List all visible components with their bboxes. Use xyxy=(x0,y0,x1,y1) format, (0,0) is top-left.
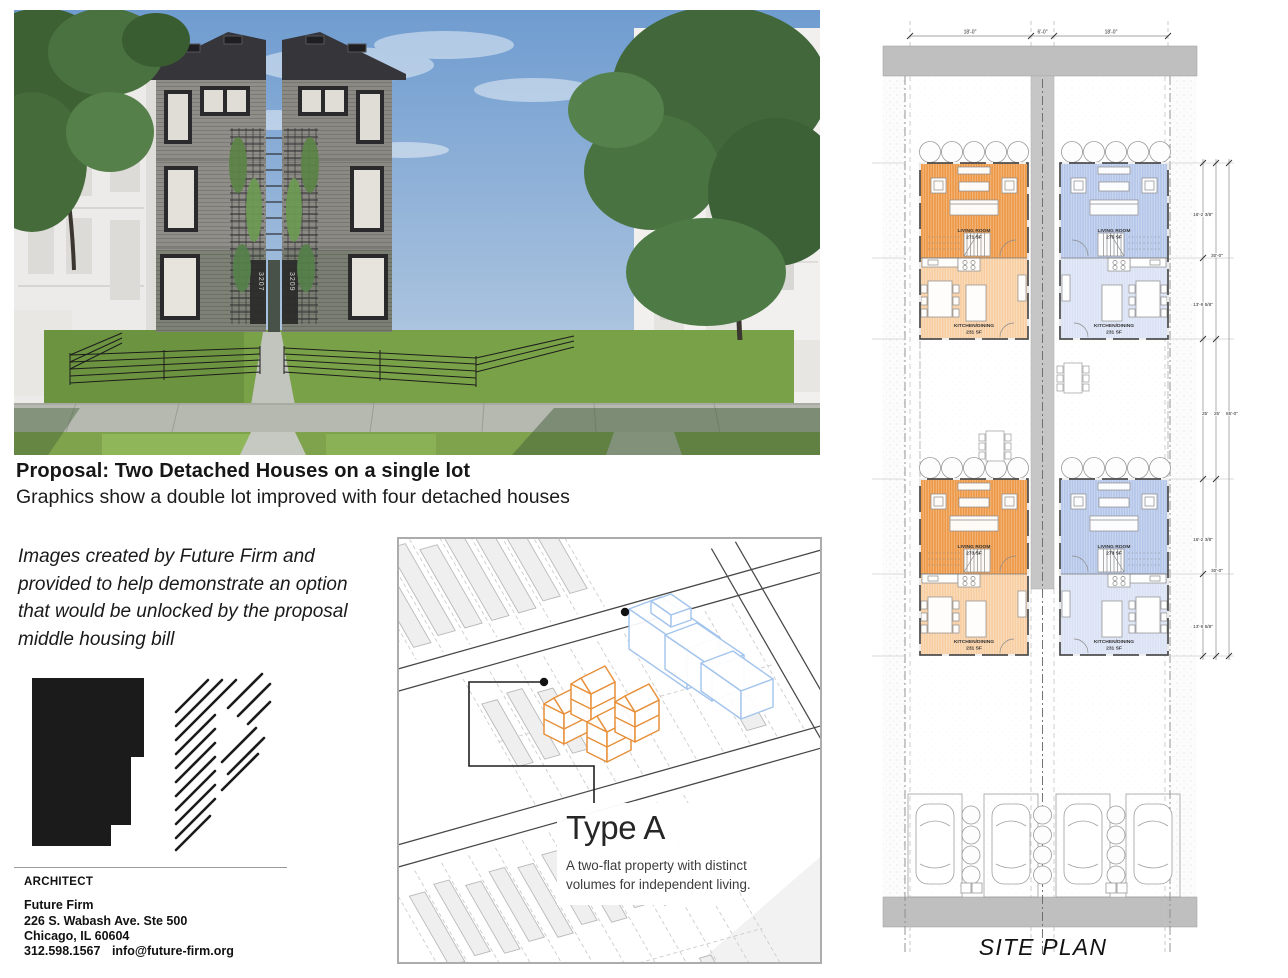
dim-mid-1: 25' xyxy=(1202,411,1208,416)
architect-email: info@future-firm.org xyxy=(112,944,234,958)
svg-text:273 SF: 273 SF xyxy=(1106,551,1122,557)
render-image: 3207 3209 xyxy=(14,10,820,455)
proposal-title: Proposal: Two Detached Houses on a singl… xyxy=(16,460,470,483)
dim-mid-3: 85'-0" xyxy=(1226,411,1238,416)
svg-text:LIVING ROOM: LIVING ROOM xyxy=(958,228,991,234)
svg-text:271 SF: 271 SF xyxy=(966,235,982,241)
street-bottom xyxy=(883,897,1197,927)
callout-dot-orange xyxy=(540,678,548,686)
svg-text:273 SF: 273 SF xyxy=(966,551,982,557)
svg-text:LIVING ROOM: LIVING ROOM xyxy=(1098,544,1131,550)
svg-text:231 SF: 231 SF xyxy=(1106,646,1122,652)
type-a-description-line1: A two-flat property with distinct xyxy=(566,858,747,873)
svg-text:275 SF: 275 SF xyxy=(1106,235,1122,241)
architect-contact: 312.598.1567 info@future-firm.org xyxy=(24,944,242,958)
presentation-board: 3207 3209 xyxy=(0,0,1288,978)
dim-top-1: 18'-0" xyxy=(964,30,977,36)
logo-hatch-f xyxy=(176,674,270,850)
house-number-left: 3207 xyxy=(257,272,264,292)
center-path-foreground xyxy=(240,432,306,455)
divider-rule xyxy=(14,867,287,868)
svg-text:KITCHEN/DINING: KITCHEN/DINING xyxy=(1094,323,1134,329)
tree-shadow-right xyxy=(512,408,820,455)
gap-passage xyxy=(268,260,280,332)
architect-address: Future Firm 226 S. Wabash Ave. Ste 500 C… xyxy=(24,898,187,945)
unit-upper-left xyxy=(920,163,1028,339)
future-firm-logo xyxy=(30,672,280,854)
unit-upper-right xyxy=(1060,163,1168,339)
type-a-callout: Type A A two-flat property with distinct… xyxy=(557,803,751,905)
dim-right-seg1-lower: 16'-2 3/8" xyxy=(1193,537,1213,542)
svg-text:231 SF: 231 SF xyxy=(966,646,982,652)
dim-right-seg2-lower: 13'-9 5/8" xyxy=(1193,624,1213,629)
house-number-right: 3209 xyxy=(288,272,295,292)
skylight xyxy=(224,36,242,44)
unit-lower-right xyxy=(1060,479,1168,655)
type-a-title: Type A xyxy=(566,809,665,846)
svg-text:231 SF: 231 SF xyxy=(1106,330,1122,336)
logo-graphic xyxy=(30,672,280,854)
svg-text:231 SF: 231 SF xyxy=(966,330,982,336)
svg-text:KITCHEN/DINING: KITCHEN/DINING xyxy=(954,323,994,329)
top-dimensions: 18'-0" 6'-0" 18'-0" xyxy=(907,21,1171,46)
svg-text:LIVING ROOM: LIVING ROOM xyxy=(1098,228,1131,234)
architect-heading: ARCHITECT xyxy=(24,876,93,888)
dim-mid-2: 25' xyxy=(1214,411,1220,416)
svg-text:LIVING ROOM: LIVING ROOM xyxy=(958,544,991,550)
site-plan-title: SITE PLAN xyxy=(979,934,1107,960)
type-a-diagram: Type A A two-flat property with distinct… xyxy=(397,537,822,964)
axon-scene: Type A A two-flat property with distinct… xyxy=(399,539,820,962)
credit-note: Images created by Future Firm and provid… xyxy=(18,543,358,653)
dim-top-3: 18'-0" xyxy=(1105,30,1118,36)
site-plan-drawing: 18'-0" 6'-0" 18'-0" xyxy=(860,8,1288,970)
callout-dot-blue xyxy=(621,608,629,616)
dim-top-2: 6'-0" xyxy=(1038,30,1048,36)
architect-address-line2: Chicago, IL 60604 xyxy=(24,929,187,945)
left-house xyxy=(142,32,266,332)
svg-text:KITCHEN/DINING: KITCHEN/DINING xyxy=(1094,639,1134,645)
unit-lower-left xyxy=(920,479,1028,655)
patio-table-right xyxy=(1057,363,1089,393)
alley-top xyxy=(883,46,1197,76)
architect-firm: Future Firm xyxy=(24,898,187,914)
proposal-subtitle: Graphics show a double lot improved with… xyxy=(16,486,570,509)
logo-solid-block xyxy=(32,678,144,846)
right-house xyxy=(282,32,406,332)
architect-address-line1: 226 S. Wabash Ave. Ste 500 xyxy=(24,914,187,930)
dim-right-total-lower: 30'-0" xyxy=(1211,568,1223,573)
patio-table-left xyxy=(979,431,1011,461)
dim-right-total-upper: 30'-0" xyxy=(1211,253,1223,258)
dim-right-seg2-upper: 13'-9 5/8" xyxy=(1193,302,1213,307)
svg-text:KITCHEN/DINING: KITCHEN/DINING xyxy=(954,639,994,645)
render-scene: 3207 3209 xyxy=(14,10,820,455)
dim-right-seg1-upper: 16'-2 3/8" xyxy=(1193,212,1213,217)
type-a-description-line2: volumes for independent living. xyxy=(566,877,751,892)
site-plan: 18'-0" 6'-0" 18'-0" xyxy=(860,8,1288,970)
architect-phone: 312.598.1567 xyxy=(24,944,100,958)
